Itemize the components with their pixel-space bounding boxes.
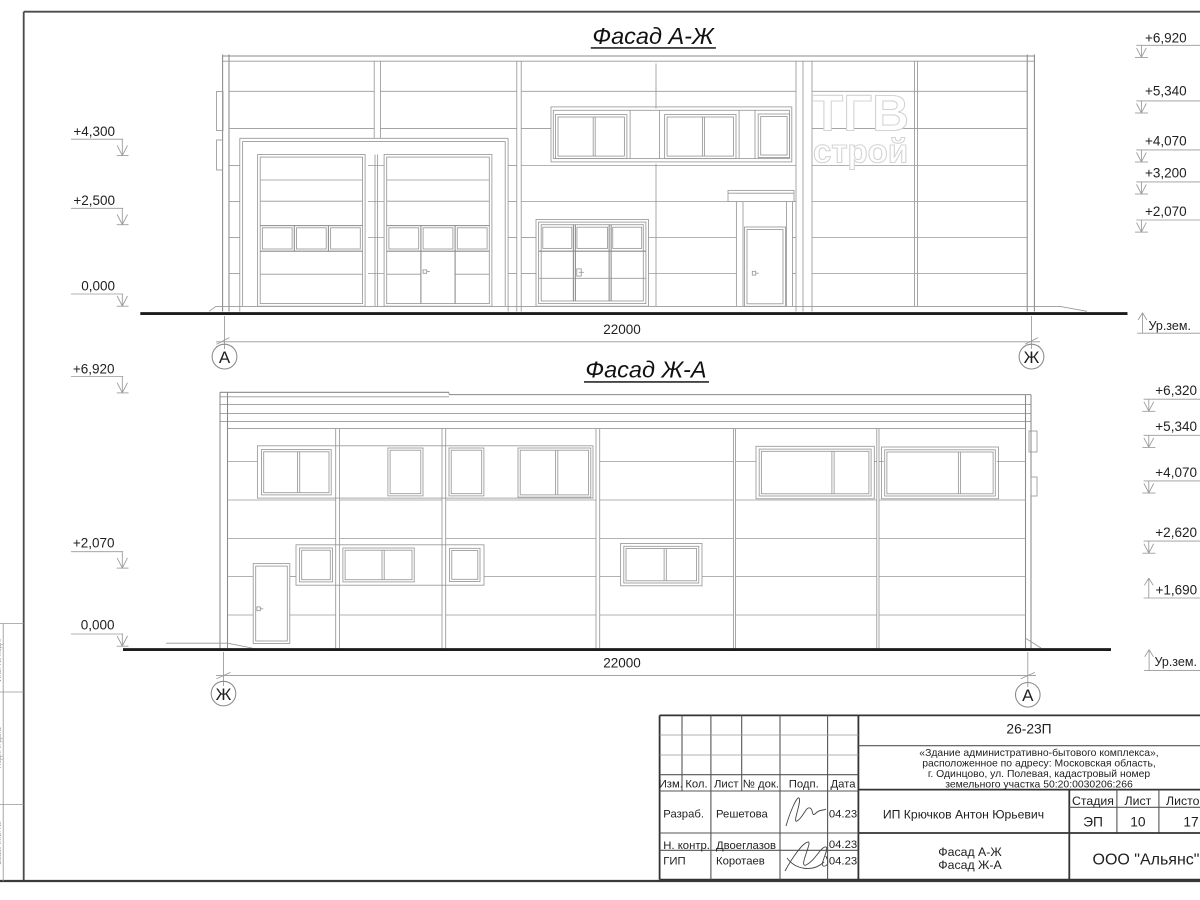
svg-text:26-23П: 26-23П [1006, 722, 1051, 737]
svg-text:Фасад А-Ж: Фасад А-Ж [938, 845, 1002, 859]
svg-text:Лист: Лист [1125, 794, 1152, 808]
svg-text:Разраб.: Разраб. [663, 809, 704, 821]
svg-text:Лист: Лист [714, 779, 739, 791]
svg-text:+5,340: +5,340 [1145, 84, 1187, 99]
svg-text:0,000: 0,000 [81, 618, 115, 633]
svg-text:А: А [1022, 686, 1034, 705]
svg-text:№ док.: № док. [743, 779, 779, 791]
svg-text:Инв. № подл.: Инв. № подл. [0, 638, 3, 682]
svg-text:ООО "Альянс": ООО "Альянс" [1093, 852, 1200, 869]
svg-text:расположенное по адресу: Моско: расположенное по адресу: Московская обла… [922, 758, 1156, 770]
svg-text:+3,200: +3,200 [1145, 165, 1187, 180]
svg-text:+4,070: +4,070 [1155, 465, 1197, 480]
svg-text:Листов: Листов [1166, 794, 1200, 808]
svg-text:Фасад Ж-А: Фасад Ж-А [585, 357, 706, 383]
svg-text:Фасад Ж-А: Фасад Ж-А [938, 858, 1002, 872]
svg-text:ЭП: ЭП [1083, 815, 1103, 830]
svg-text:Стадия: Стадия [1072, 794, 1114, 808]
svg-text:ИП Крючков Антон Юрьевич: ИП Крючков Антон Юрьевич [883, 808, 1044, 822]
svg-text:10: 10 [1130, 815, 1146, 830]
svg-text:Изм.: Изм. [659, 779, 683, 791]
svg-text:+2,500: +2,500 [73, 193, 115, 208]
svg-text:+2,070: +2,070 [1145, 204, 1187, 219]
svg-text:+2,070: +2,070 [73, 536, 115, 551]
svg-text:+1,690: +1,690 [1156, 583, 1198, 598]
svg-text:Коротаев: Коротаев [716, 856, 765, 868]
svg-text:+4,300: +4,300 [73, 124, 115, 139]
svg-text:Подп.: Подп. [789, 779, 819, 791]
svg-text:0,000: 0,000 [81, 279, 115, 294]
svg-text:Взам. инв. №: Взам. инв. № [0, 821, 3, 864]
svg-text:«Здание административно-бытово: «Здание административно-бытового комплек… [919, 747, 1158, 759]
svg-text:Фасад А-Ж: Фасад А-Ж [592, 23, 715, 49]
svg-text:22000: 22000 [603, 656, 641, 671]
svg-text:+6,320: +6,320 [1155, 383, 1197, 398]
svg-text:Подп. и дата: Подп. и дата [0, 727, 3, 768]
svg-text:+6,920: +6,920 [1145, 31, 1187, 46]
svg-text:строй: строй [813, 133, 908, 170]
svg-text:Кол.: Кол. [685, 779, 707, 791]
svg-text:А: А [219, 348, 231, 367]
svg-text:ГИП: ГИП [663, 856, 685, 868]
svg-text:+5,340: +5,340 [1155, 419, 1197, 434]
svg-text:04.23: 04.23 [829, 856, 857, 868]
svg-text:22000: 22000 [603, 322, 641, 337]
svg-text:+6,920: +6,920 [73, 361, 115, 376]
svg-text:17: 17 [1183, 815, 1198, 830]
svg-text:+4,070: +4,070 [1145, 133, 1187, 148]
svg-text:04.23: 04.23 [829, 809, 857, 821]
svg-text:04.23: 04.23 [829, 839, 857, 851]
svg-text:Ж: Ж [216, 685, 232, 704]
svg-text:Двоеглазов: Двоеглазов [716, 840, 776, 852]
svg-text:+2,620: +2,620 [1155, 525, 1197, 540]
svg-text:г. Одинцово, ул. Полевая, када: г. Одинцово, ул. Полевая, кадастровый но… [928, 769, 1151, 780]
svg-text:Ур.зем.: Ур.зем. [1149, 319, 1191, 333]
svg-text:Дата: Дата [830, 779, 856, 791]
svg-text:Н. контр.: Н. контр. [663, 840, 710, 852]
svg-text:земельного участка 50:20:00302: земельного участка 50:20:0030206:266 [945, 780, 1133, 791]
svg-text:Решетова: Решетова [716, 809, 768, 821]
svg-text:Ур.зем.: Ур.зем. [1155, 655, 1197, 669]
svg-text:Ж: Ж [1024, 348, 1040, 367]
